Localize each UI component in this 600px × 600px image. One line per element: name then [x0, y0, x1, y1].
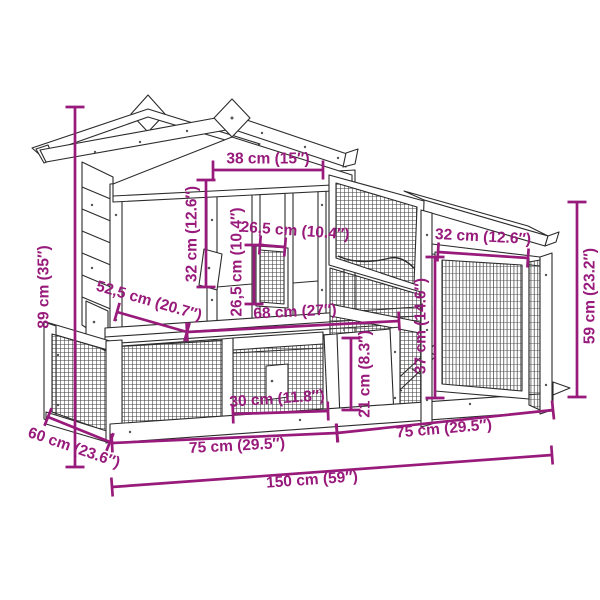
dimension-label-total-height: 89 cm (35″) [36, 245, 53, 328]
hutch-dimension-diagram: 89 cm (35″)38 cm (15″)32 cm (12.6″)26,5 … [0, 0, 600, 600]
dimension-label-left-panel-height: 32 cm (12.6″) [184, 186, 201, 282]
dimension-cap-end [527, 249, 528, 268]
dimension-diagram-page: 89 cm (35″)38 cm (15″)32 cm (12.6″)26,5 … [0, 0, 600, 600]
run-left-side [44, 322, 110, 443]
dimension-label-run-door-height: 21 cm (8.3″) [357, 330, 374, 418]
dimension-label-annex-door-height: 37 cm (14.6″) [413, 278, 430, 374]
dimension-cap-start [259, 236, 261, 255]
dimension-label-annex-door-width: 32 cm (12.6″) [435, 226, 532, 248]
dimension-cap-end [399, 312, 400, 331]
dimension-cap-end [551, 446, 552, 465]
dimension-cap-end [552, 401, 554, 420]
dimension-cap-end [328, 402, 329, 421]
dimension-cap-start [111, 478, 112, 497]
dimension-label-total-width: 150 cm (59″) [266, 468, 359, 491]
dimension-label-base-left-width: 75 cm (29.5″) [189, 435, 286, 457]
house-left-wall [82, 162, 113, 352]
dimension-cap-end [284, 238, 286, 257]
dimension-label-annex-height: 59 cm (23.2″) [582, 248, 599, 344]
dimension-label-roof-front-width: 38 cm (15″) [226, 151, 309, 168]
dimension-total-width: 150 cm (59″) [111, 446, 552, 497]
dimension-annex-height: 59 cm (23.2″) [568, 202, 599, 397]
dimension-cap-start [437, 243, 438, 262]
dimension-cap-start [187, 323, 188, 342]
